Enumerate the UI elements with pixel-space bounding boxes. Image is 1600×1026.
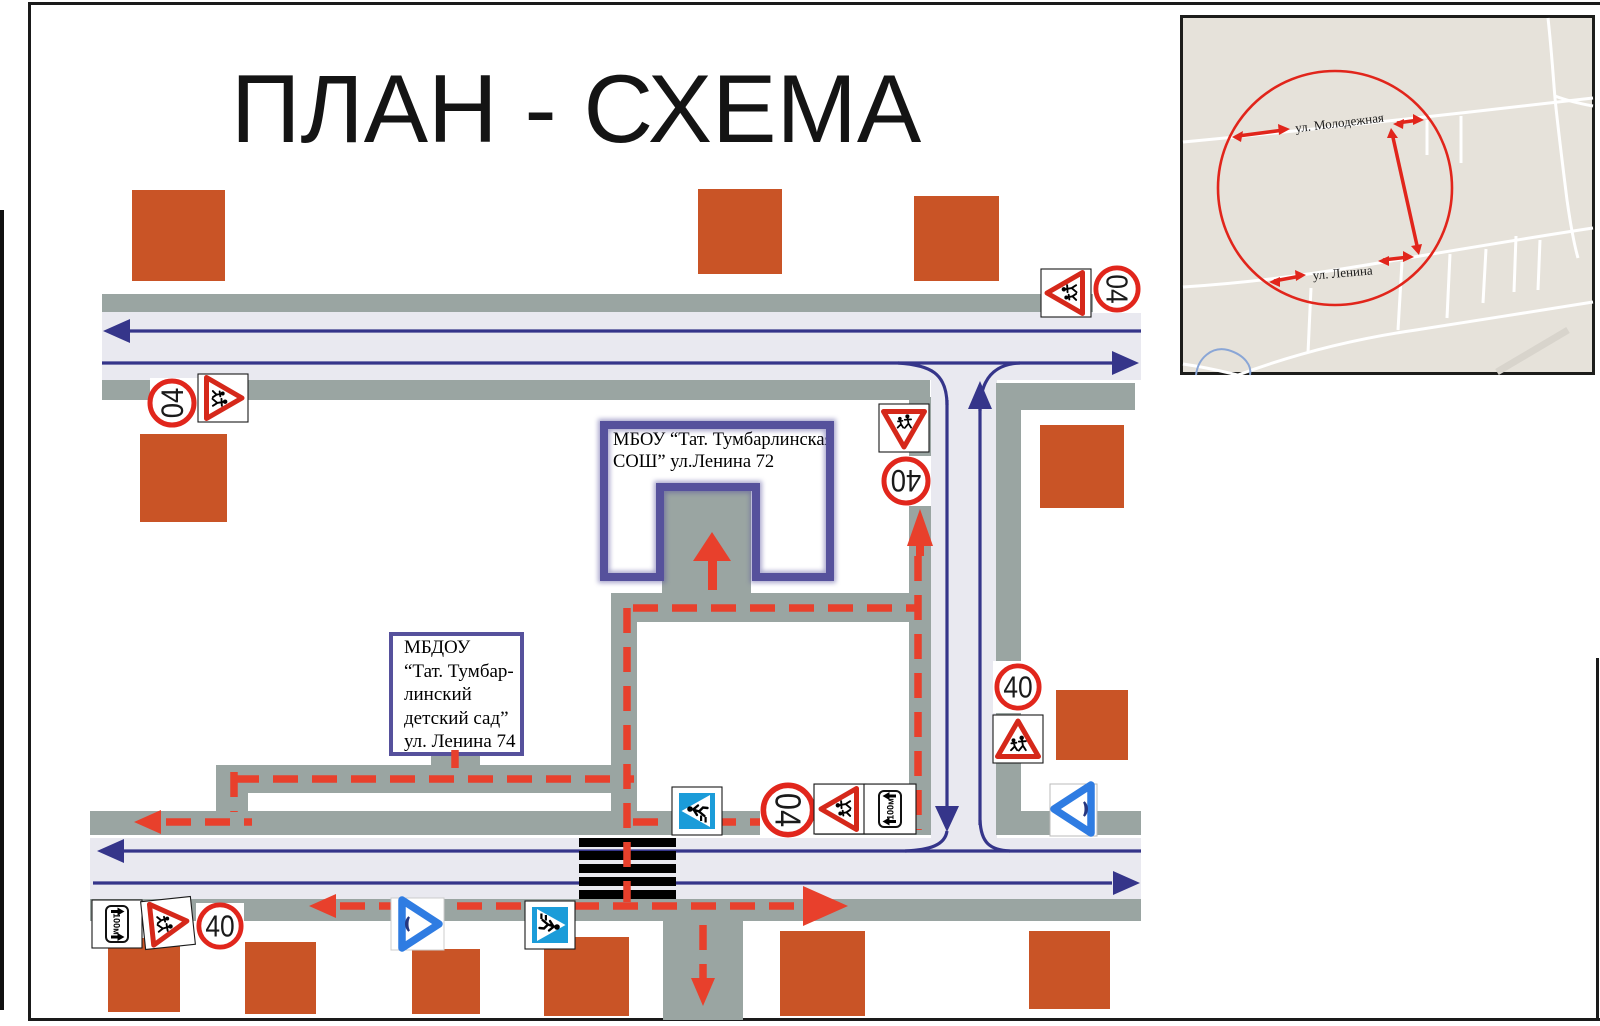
svg-text:ул. Молодежная: ул. Молодежная — [1294, 110, 1384, 136]
svg-text:ул. Ленина: ул. Ленина — [1312, 262, 1373, 282]
